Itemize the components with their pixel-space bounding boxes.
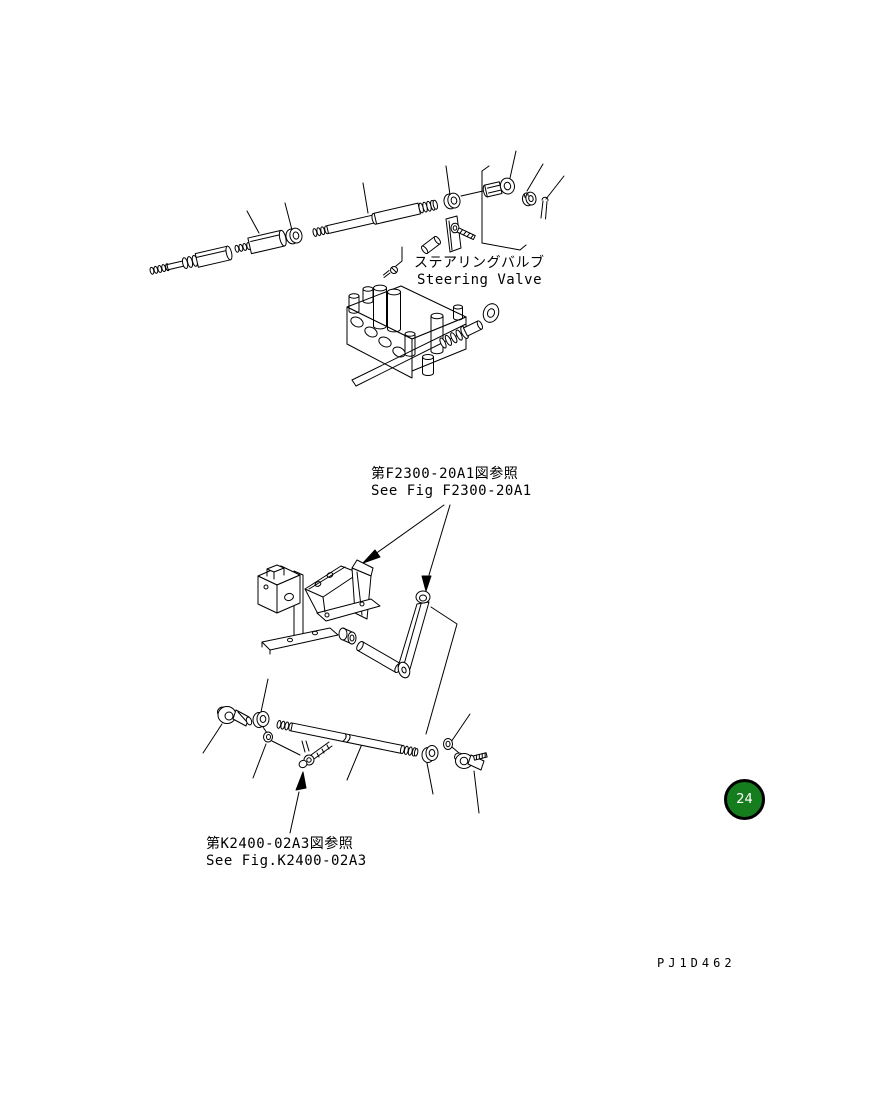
fig-k2400-arrow: [290, 772, 306, 833]
label-see-fig-k2400-en: See Fig.K2400-02A3: [206, 853, 367, 869]
clevis-bolt: [298, 741, 332, 769]
connection-line-2: [451, 714, 470, 742]
screw-leader: [396, 247, 402, 266]
label-steering-valve-jp: ステアリングバルブ: [414, 255, 545, 271]
washer-left: [264, 732, 273, 742]
page-number-badge[interactable]: 24: [724, 779, 765, 820]
screw: [384, 267, 398, 278]
threaded-rod-left: [149, 246, 233, 278]
leader-lines-lower: [203, 679, 479, 813]
ball-joint-left: [218, 707, 253, 727]
fig-f2300-arrows: [363, 505, 450, 591]
plug: [420, 235, 441, 254]
castle-nut: [521, 191, 537, 207]
pedal-bracket-assembly: [258, 505, 470, 742]
link-rod: [276, 720, 418, 757]
pin-rod: [355, 640, 402, 673]
tie-rod: [312, 199, 439, 238]
label-see-fig-f2300-en: See Fig F2300-20A1: [371, 483, 532, 499]
pedal-stand: [305, 560, 380, 621]
label-see-fig-f2300-jp: 第F2300-20A1図参照: [371, 466, 518, 482]
cotter-pin: [541, 197, 548, 219]
sleeve: [233, 230, 287, 257]
drag-link-assembly: [203, 679, 487, 833]
clevis-pin: [473, 753, 487, 760]
eye-ring: [481, 302, 502, 325]
ball-joint-right: [455, 753, 488, 770]
lock-nut-2: [443, 192, 462, 210]
label-steering-valve-en: Steering Valve: [417, 272, 542, 288]
catalog-page: ステアリングバルブ Steering Valve 第F2300-20A1図参照 …: [0, 0, 879, 1120]
lever-arm: [396, 591, 430, 679]
mount-plate-bolt: [446, 216, 475, 252]
lock-nut: [285, 227, 304, 245]
rod-end-bearing: [482, 177, 516, 200]
label-see-fig-k2400-jp: 第K2400-02A3図参照: [206, 836, 353, 852]
washer-right: [444, 739, 453, 750]
roller: [339, 628, 356, 644]
figure-code: PJ1D462: [657, 956, 736, 970]
lock-nut-right: [422, 746, 438, 763]
parts-diagram: [0, 0, 879, 1120]
leader-lines-upper: [247, 151, 564, 233]
steering-valve-body: [347, 285, 501, 386]
connection-line: [426, 607, 457, 734]
lock-nut-left: [253, 712, 269, 728]
